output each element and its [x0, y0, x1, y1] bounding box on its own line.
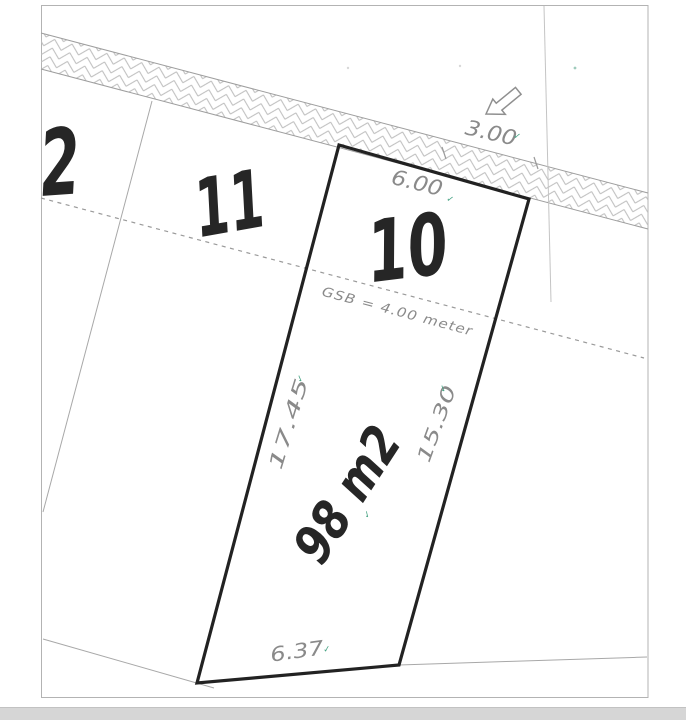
check-tick-icon: ✓ — [512, 131, 522, 142]
boundary-rear-left — [43, 639, 214, 688]
check-tick-icon: ✓ — [445, 194, 455, 206]
lot10-rear-dimension: 6.37 — [269, 635, 326, 666]
boundary-rear-right — [399, 657, 647, 665]
drawing-frame-border — [42, 6, 649, 698]
road-lower-edge — [41, 69, 648, 229]
road-direction-arrow-icon — [481, 86, 526, 120]
lot10-right-dimension: 15.30 — [413, 383, 461, 466]
lot10-left-dimension: 17.45 — [265, 376, 314, 472]
lot11-number: 11 — [187, 152, 272, 256]
road-hatch-fill — [41, 33, 648, 229]
road-upper-edge — [41, 33, 648, 193]
site-plan-canvas: 2 11 10 98 m2 3.00 6.00 17.45 15.30 6.37… — [0, 0, 686, 707]
bottom-bar — [0, 707, 686, 720]
speck-green — [574, 67, 577, 70]
site-plan-screenshot: 2 11 10 98 m2 3.00 6.00 17.45 15.30 6.37… — [0, 0, 686, 720]
lot10-number: 10 — [362, 195, 453, 303]
boundary-right-parcel — [544, 6, 551, 302]
lot2-number: 2 — [36, 108, 83, 218]
speck — [459, 65, 461, 67]
road-width-label: 3.00 — [463, 115, 519, 150]
setback-dashed-line — [41, 198, 644, 358]
lot10-area-label: 98 m2 — [282, 416, 414, 574]
road-strip — [41, 33, 648, 229]
check-tick-icon: ✓ — [323, 645, 332, 656]
speck — [347, 67, 349, 69]
